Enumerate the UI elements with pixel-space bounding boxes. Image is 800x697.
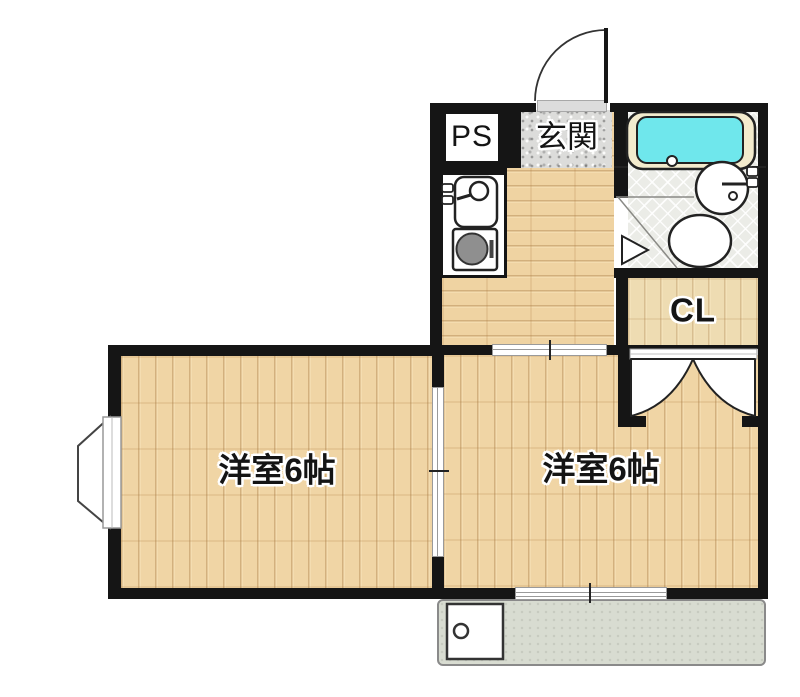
wall-segment [432,345,444,387]
wall-segment [614,268,768,278]
floor-plan: PS 玄関 CL 洋室6帖 洋室6帖 [0,0,800,697]
wall-segment [610,103,768,112]
wall-segment [618,349,630,418]
wall-segment [758,103,768,599]
wall-segment [667,588,768,599]
wall-segment [628,345,758,349]
room-partition-sliding-door [432,387,444,557]
bay-window [78,417,121,528]
closet-label: CL [670,294,716,327]
wall-segment [443,345,492,355]
wall-segment [108,345,121,417]
entrance-threshold [537,100,607,112]
wall-segment [742,416,768,427]
wall-segment [618,416,646,427]
right-room-label: 洋室6帖 [542,453,659,486]
hall-to-room-sliding-door [492,344,607,356]
wall-segment [502,110,521,168]
entrance-label: 玄関 [536,122,598,153]
wall-segment [108,345,443,356]
wall-segment [430,103,442,345]
pipe-space-label: PS [451,122,493,152]
wall-segment [616,278,628,349]
wall-segment [432,557,444,589]
right-room-window [515,587,667,600]
left-room-label: 洋室6帖 [218,454,335,487]
wall-segment [108,588,515,599]
wall-segment [430,163,507,172]
entrance-door-swing [535,28,608,103]
wall-segment [614,103,628,198]
balcony [437,599,766,666]
bathroom-floor [628,112,758,268]
kitchen-counter [440,172,507,278]
wall-segment [607,345,630,355]
